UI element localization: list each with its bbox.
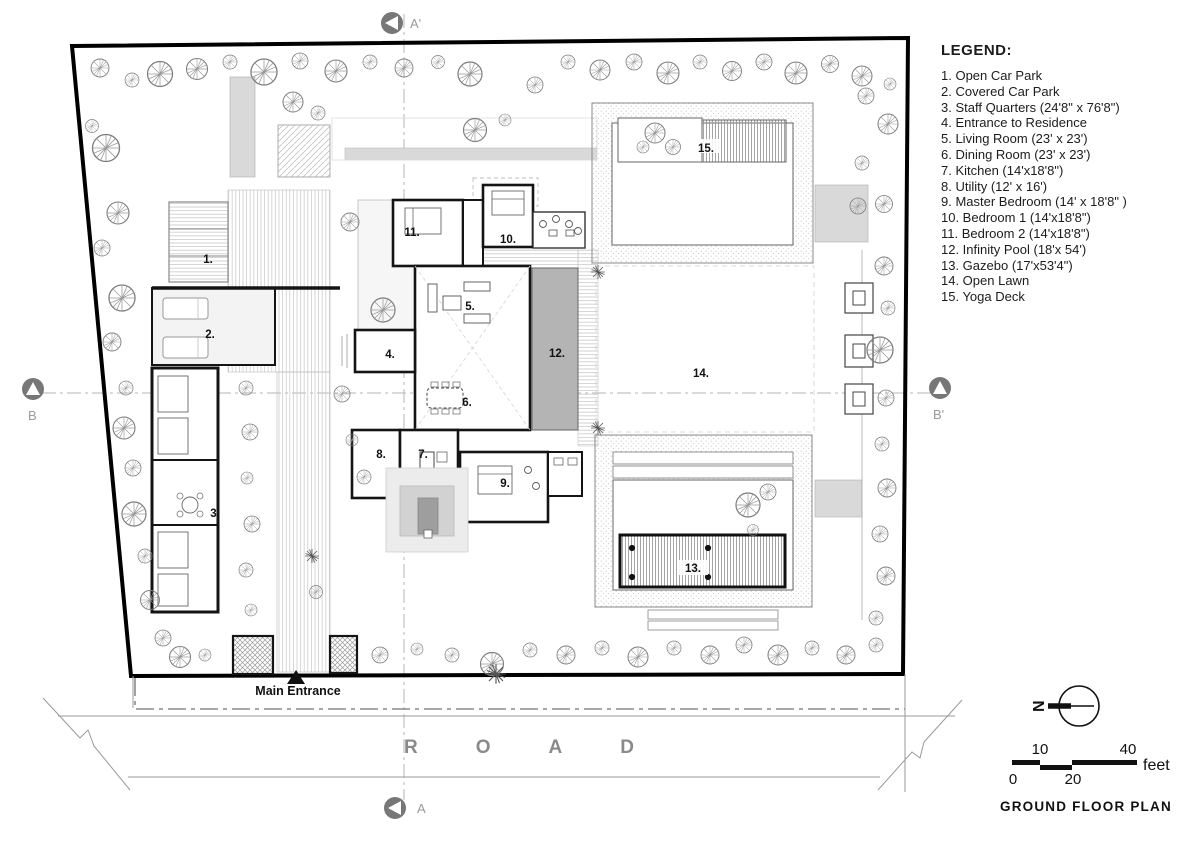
tree-icon [334, 386, 350, 402]
tree-icon [852, 66, 872, 86]
tree-icon [187, 59, 208, 80]
north-arrow: N [1031, 686, 1099, 726]
road-label: ROAD [404, 737, 692, 758]
tree-icon [119, 381, 133, 395]
section-label-b-right: B' [933, 407, 944, 422]
east-planters [845, 283, 873, 414]
legend-item: 1. Open Car Park [941, 68, 1191, 84]
tree-icon [94, 240, 110, 256]
tree-icon [292, 53, 308, 69]
tree-icon [445, 648, 459, 662]
tree-icon [736, 493, 760, 517]
tree-icon [645, 123, 665, 143]
car-1 [163, 298, 208, 319]
tree-icon [86, 120, 99, 133]
legend-item: 13. Gazebo (17'x53'4") [941, 258, 1191, 274]
room-label-5: 5. [465, 301, 475, 313]
room-label-15: 15. [698, 143, 714, 155]
tree-icon [251, 59, 277, 85]
buildings [152, 103, 873, 674]
room-label-12: 12. [549, 348, 565, 360]
legend-item: 15. Yoga Deck [941, 289, 1191, 305]
bed [492, 191, 524, 215]
tree-icon [637, 141, 649, 153]
room-label-9: 9. [500, 478, 510, 490]
room-label-6: 6. [462, 397, 472, 409]
tree-icon [170, 647, 191, 668]
court-feature-plinth [424, 530, 432, 538]
legend: LEGEND: 1. Open Car Park 2. Covered Car … [941, 42, 1191, 305]
tree-icon [855, 156, 869, 170]
pool-deck-east [578, 250, 598, 446]
tree-icon [666, 140, 681, 155]
tree-icon [884, 78, 896, 90]
room-label-10: 10. [500, 234, 516, 246]
scale-tick-10: 10 [1032, 741, 1049, 758]
staff-table [182, 497, 198, 513]
road-break-left [43, 698, 130, 790]
scale-tick-0: 0 [1009, 771, 1017, 788]
bed [158, 574, 188, 606]
scale-segment [1072, 760, 1137, 765]
tree-icon [371, 298, 395, 322]
tree-icon [199, 649, 211, 661]
room-label-14: 14. [693, 368, 709, 380]
scale-tick-20: 20 [1065, 771, 1082, 788]
legend-item: 6. Dining Room (23' x 23') [941, 147, 1191, 163]
tree-icon [311, 106, 325, 120]
coffee-table [443, 296, 461, 310]
room-label-11: 11. [404, 227, 419, 239]
legend-item: 11. Bedroom 2 (14'x18'8") [941, 226, 1191, 242]
room-label-3: 3. [210, 508, 220, 520]
bed [158, 418, 188, 454]
road: ROAD [43, 678, 962, 790]
tree-icon [822, 56, 839, 73]
tree-icon [155, 630, 171, 646]
tree-icon [109, 285, 135, 311]
section-label-a-bottom: A [417, 801, 426, 816]
tree-icon [875, 437, 889, 451]
tree-icon [768, 645, 788, 665]
tree-icon [523, 643, 537, 657]
sofa [428, 284, 437, 312]
bed [158, 376, 188, 412]
tree-icon [411, 643, 423, 655]
tree-icon [242, 424, 258, 440]
legend-item: 9. Master Bedroom (14' x 18'8" ) [941, 194, 1191, 210]
tree-icon [464, 119, 487, 142]
tree-icon [122, 502, 146, 526]
gazebo-step [613, 452, 793, 464]
tree-icon [837, 646, 855, 664]
legend-item: 10. Bedroom 1 (14'x18'8") [941, 210, 1191, 226]
tree-icon [244, 516, 260, 532]
tree-icon [760, 484, 776, 500]
gazebo-step-south [648, 610, 778, 619]
tree-icon [626, 54, 642, 70]
legend-item: 8. Utility (12' x 16') [941, 179, 1191, 195]
room-label-2: 2. [205, 329, 215, 341]
legend-item: 5. Living Room (23' x 23') [941, 131, 1191, 147]
tree-icon [748, 525, 759, 536]
room-label-13: 13. [685, 563, 701, 575]
sofa [464, 282, 490, 291]
tree-icon [241, 472, 253, 484]
plant-icon [591, 265, 605, 279]
tree-icon [657, 62, 679, 84]
tree-icon [878, 114, 898, 134]
bed [158, 532, 188, 568]
tree-icon [756, 54, 772, 70]
tree-icon [872, 526, 888, 542]
tree-icon [867, 337, 893, 363]
legend-title: LEGEND: [941, 42, 1191, 59]
scale-bar: 10 40 0 20 feet [1009, 741, 1170, 788]
court-feature-inner [418, 498, 438, 534]
dining-table [427, 388, 463, 408]
scale-segment [1040, 765, 1072, 770]
legend-item: 14. Open Lawn [941, 273, 1191, 289]
open-car-park [169, 202, 228, 282]
scale-unit: feet [1143, 757, 1170, 774]
tree-icon [325, 60, 347, 82]
gazebo-step-south [648, 621, 778, 630]
tree-icon [628, 647, 648, 667]
plant-icon [486, 664, 506, 684]
tree-icon [372, 647, 388, 663]
gate-post-right [330, 636, 357, 673]
tree-icon [557, 646, 575, 664]
tree-icon [125, 73, 139, 87]
gazebo-step [613, 466, 793, 478]
tree-icon [245, 604, 257, 616]
tree-icon [363, 55, 377, 69]
lawn-outline [596, 266, 814, 432]
tree-icon [148, 62, 173, 87]
tree-icon [239, 381, 253, 395]
main-entrance-label: Main Entrance [255, 684, 340, 698]
section-label-a-top: A' [410, 16, 421, 31]
tree-icon [877, 567, 895, 585]
car-2 [163, 337, 208, 358]
tree-icon [693, 55, 707, 69]
tree-icon [858, 88, 874, 104]
legend-item: 12. Infinity Pool (18'x 54') [941, 242, 1191, 258]
tree-icon [283, 92, 303, 112]
north-terrace-path [345, 148, 597, 160]
tree-icon [595, 641, 609, 655]
tree-icon [881, 301, 895, 315]
tree-icon [869, 611, 883, 625]
tree-icon [805, 641, 819, 655]
tree-icon [310, 586, 323, 599]
tree-icon [93, 135, 120, 162]
tree-icon [223, 55, 237, 69]
room-label-8: 8. [376, 449, 386, 461]
tree-icon [91, 59, 109, 77]
east-connector-lower [815, 480, 862, 517]
legend-item: 4. Entrance to Residence [941, 115, 1191, 131]
scale-segment [1012, 760, 1040, 765]
path-topleft [230, 77, 255, 177]
scale-tick-40: 40 [1120, 741, 1137, 758]
tree-icon [876, 196, 893, 213]
sheet-title: GROUND FLOOR PLAN [1000, 799, 1172, 814]
patio-topleft [278, 125, 330, 177]
tree-icon [107, 202, 129, 224]
tree-icon [113, 417, 135, 439]
tree-icon [667, 641, 681, 655]
gate-post-left [233, 636, 273, 674]
tree-icon [458, 62, 482, 86]
tree-icon [875, 257, 893, 275]
plant-icon [591, 421, 605, 435]
section-label-b-left: B [28, 408, 37, 423]
tree-icon [561, 55, 575, 69]
plant-icon [305, 549, 319, 563]
tree-icon [357, 470, 371, 484]
tree-icon [395, 59, 413, 77]
tree-icon [785, 62, 807, 84]
road-break-right [878, 700, 962, 790]
tree-icon [138, 549, 152, 563]
room-label-1: 1. [203, 254, 213, 266]
sofa [464, 314, 490, 323]
tree-icon [869, 638, 883, 652]
road-property-line [135, 678, 905, 709]
tree-icon [141, 591, 160, 610]
room-label-7: 7. [418, 449, 428, 461]
tree-icon [346, 434, 358, 446]
tree-icon [723, 62, 742, 81]
tree-icon [850, 198, 866, 214]
room-label-4: 4. [385, 349, 395, 361]
tree-icon [499, 114, 511, 126]
legend-item: 7. Kitchen (14'x18'8") [941, 163, 1191, 179]
tree-icon [239, 563, 253, 577]
tree-icon [125, 460, 141, 476]
tree-icon [527, 77, 543, 93]
legend-item: 3. Staff Quarters (24'8" x 76'8") [941, 100, 1191, 116]
driveway-lower [277, 372, 330, 672]
tree-icon [878, 390, 894, 406]
tree-icon [341, 213, 359, 231]
tree-icon [878, 479, 896, 497]
north-label: N [1031, 700, 1048, 712]
tree-icon [736, 637, 752, 653]
tree-icon [701, 646, 719, 664]
foyer [463, 200, 483, 266]
ground-floor-plan-sheet: { "legend": { "title": "LEGEND:", "items… [0, 0, 1200, 848]
tree-icon [103, 333, 121, 351]
legend-item: 2. Covered Car Park [941, 84, 1191, 100]
entry-steps [342, 334, 347, 368]
tree-icon [432, 56, 445, 69]
tree-icon [590, 60, 610, 80]
